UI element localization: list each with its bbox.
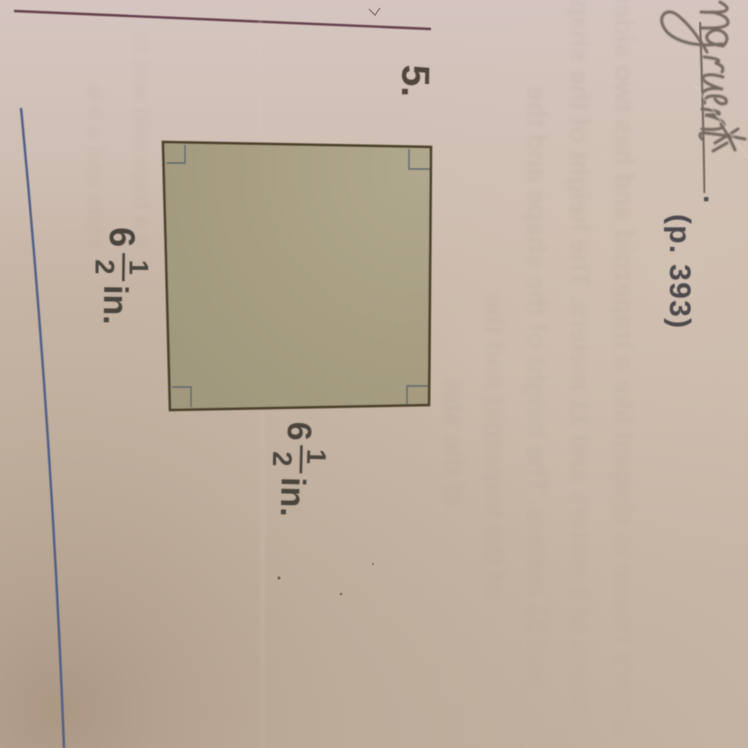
svg-text:.: . [697, 195, 730, 203]
svg-text:and 11 meters. The height of t: and 11 meters. The height of the shape a… [522, 86, 552, 688]
svg-text:eters and a 9-b: eters and a 9-b [83, 86, 109, 248]
svg-text:2: 2 [89, 259, 119, 274]
svg-text:6: 6 [280, 421, 318, 441]
svg-text:6: 6 [102, 227, 143, 248]
svg-text:(p. 393): (p. 393) [663, 214, 696, 329]
svg-text:bases of 8 meters and 11 meter: bases of 8 meters and 11 meters. The hei… [565, 0, 595, 718]
svg-text:in.: in. [273, 477, 312, 518]
svg-text:1: 1 [301, 449, 331, 465]
svg-text:2: 2 [267, 451, 297, 467]
svg-text:e a trapezoid and th: e a trapezoid and th [129, 32, 155, 248]
svg-text:urate's house is shaped like a: urate's house is shaped like a trapezoid… [609, 0, 639, 738]
svg-text:in.: in. [96, 285, 134, 325]
svg-text:of the trapezoid and the: of the trapezoid and the [480, 293, 510, 598]
svg-text:5.: 5. [393, 64, 437, 97]
svg-text:1: 1 [123, 260, 153, 275]
svg-text:of the sha: of the sha [439, 380, 469, 508]
